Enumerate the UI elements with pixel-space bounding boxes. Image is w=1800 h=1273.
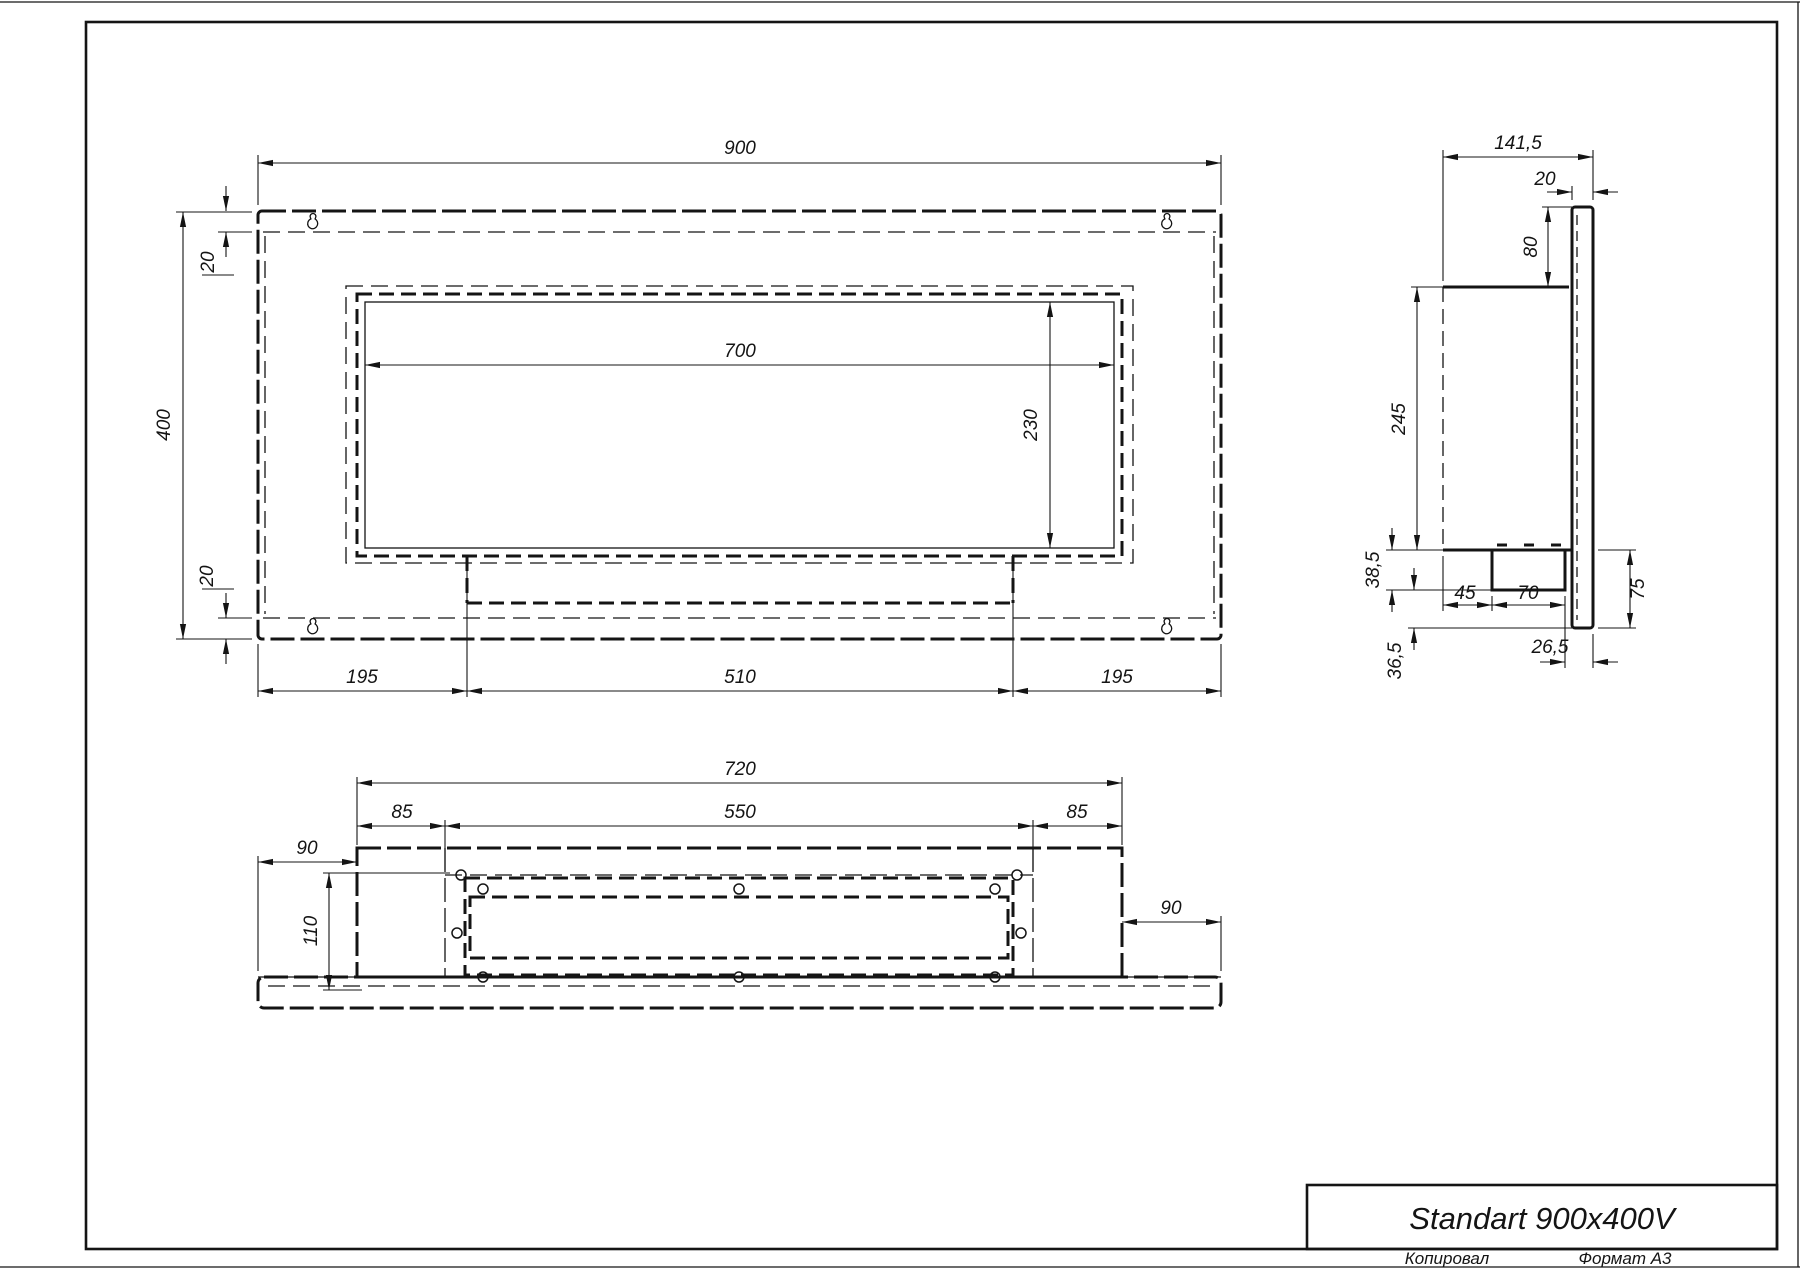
dim-side-depth: 141,5 bbox=[1494, 133, 1542, 154]
sheet-border bbox=[0, 2, 1800, 1267]
dim-bottom-flange-right: 90 bbox=[1160, 898, 1182, 919]
dim-bottom-right-margin: 85 bbox=[1066, 802, 1088, 823]
opening-edge bbox=[365, 302, 1114, 548]
dim-side-burner-width: 70 bbox=[1517, 583, 1539, 604]
dim-side-burner-offset: 45 bbox=[1454, 583, 1476, 604]
dim-front-width: 900 bbox=[724, 138, 756, 159]
dim-bottom-left-margin: 85 bbox=[391, 802, 413, 823]
drawing-title: Standart 900x400V bbox=[1409, 1201, 1678, 1236]
dim-bottom-width: 720 bbox=[724, 759, 756, 780]
dim-side-edge-offset: 26,5 bbox=[1531, 637, 1569, 658]
footer-format-label: Формат A3 bbox=[1578, 1249, 1672, 1268]
dim-side-top-offset: 80 bbox=[1521, 236, 1542, 258]
opening-outer-contour bbox=[346, 286, 1133, 563]
side-wall-panel bbox=[1572, 207, 1593, 628]
drawing-frame bbox=[86, 22, 1777, 1249]
dim-bottom-center: 510 bbox=[724, 667, 756, 688]
dim-side-body: 245 bbox=[1389, 403, 1410, 436]
dim-side-bracket: 75 bbox=[1628, 578, 1649, 600]
front-outer-panel bbox=[258, 211, 1221, 639]
drawing-sheet: 900 400 20 20 700 230 195 510 195 bbox=[0, 0, 1800, 1273]
dim-front-inset-bottom: 20 bbox=[197, 565, 218, 588]
screw-holes bbox=[452, 870, 1026, 982]
dim-bottom-opening: 550 bbox=[724, 802, 756, 823]
opening-mid-contour bbox=[357, 294, 1122, 556]
dim-bottom-left: 195 bbox=[346, 667, 378, 688]
footer-copied-label: Копировал bbox=[1405, 1249, 1490, 1268]
dim-bottom-right: 195 bbox=[1101, 667, 1133, 688]
technical-drawing: 900 400 20 20 700 230 195 510 195 bbox=[0, 0, 1800, 1273]
dim-bottom-depth: 110 bbox=[301, 915, 322, 946]
side-view: 141,5 20 80 245 38,5 36,5 45 70 26,5 75 bbox=[1363, 133, 1649, 679]
bottom-burner-inner bbox=[470, 897, 1008, 958]
keyhole-top-right bbox=[1162, 214, 1172, 229]
keyhole-bottom-right bbox=[1162, 619, 1172, 634]
dim-side-panel: 20 bbox=[1533, 169, 1556, 190]
front-view: 900 400 20 20 700 230 195 510 195 bbox=[154, 138, 1221, 697]
dim-side-lower-step: 36,5 bbox=[1385, 642, 1406, 679]
bottom-view: 720 550 85 85 90 90 110 bbox=[258, 759, 1221, 1008]
dim-side-step: 38,5 bbox=[1363, 551, 1384, 588]
dim-front-height: 400 bbox=[154, 409, 175, 441]
keyhole-top-left bbox=[308, 214, 318, 229]
bottom-burner-outer bbox=[465, 878, 1013, 975]
dim-bottom-flange-left: 90 bbox=[296, 838, 318, 859]
dim-front-inset-top: 20 bbox=[198, 251, 219, 274]
dim-opening-height: 230 bbox=[1021, 409, 1042, 442]
keyhole-bottom-left bbox=[308, 619, 318, 634]
dim-opening-width: 700 bbox=[724, 341, 756, 362]
title-block: Standart 900x400V Копировал Формат A3 bbox=[1307, 1185, 1777, 1268]
